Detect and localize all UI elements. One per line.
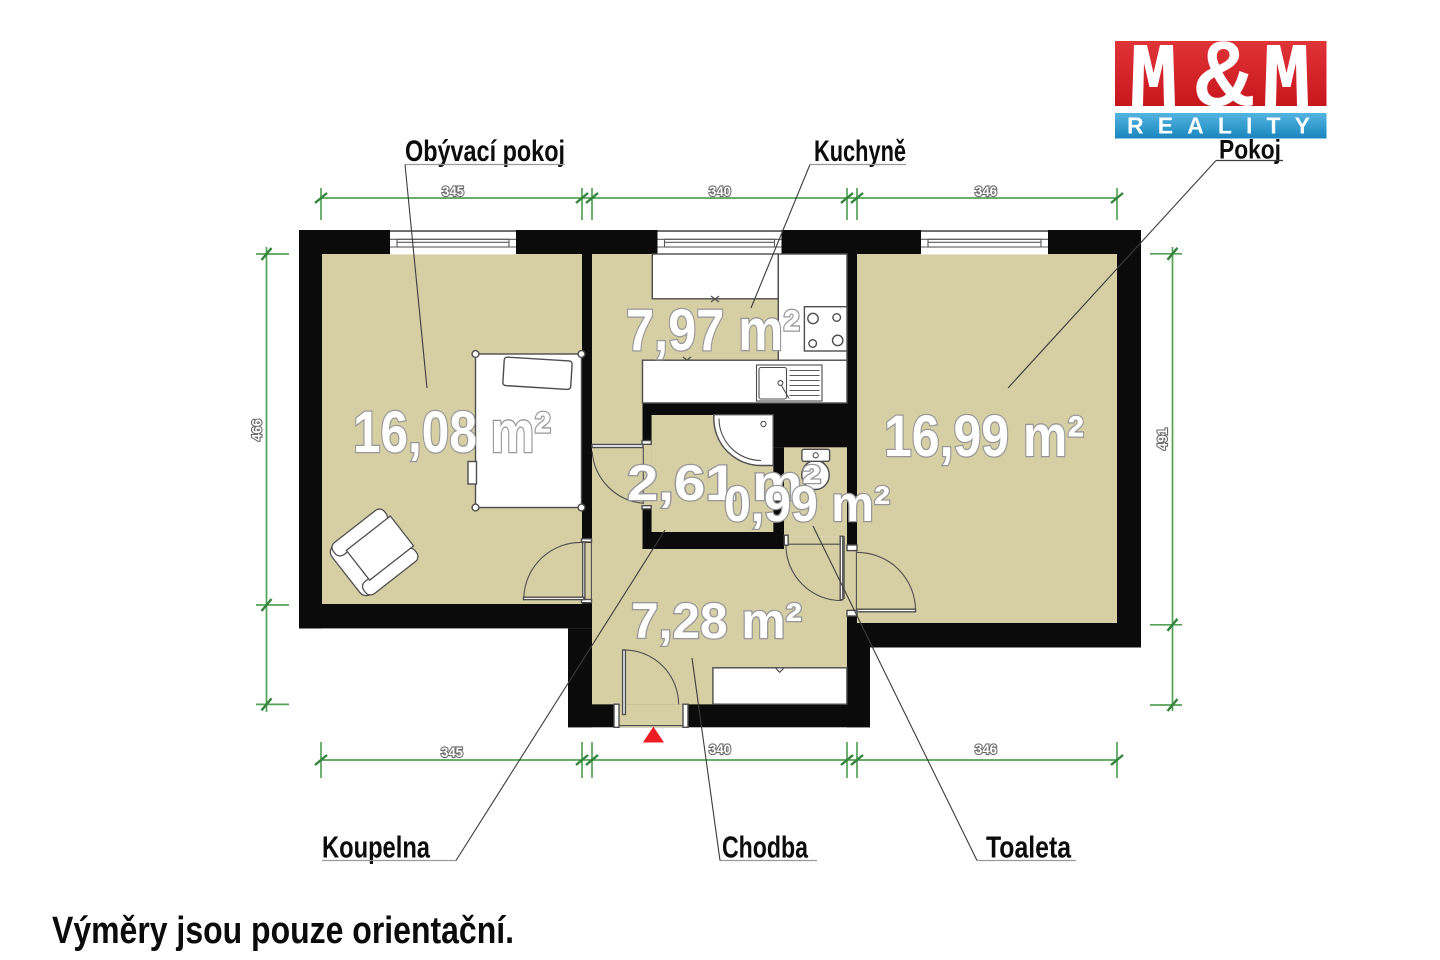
svg-text:491: 491 xyxy=(1154,428,1170,450)
svg-text:345: 345 xyxy=(442,183,464,199)
svg-text:Toaleta: Toaleta xyxy=(986,830,1072,865)
svg-text:7,97 m²: 7,97 m² xyxy=(626,298,800,363)
svg-text:466: 466 xyxy=(249,419,265,441)
svg-text:Koupelna: Koupelna xyxy=(322,830,431,865)
svg-text:346: 346 xyxy=(975,183,997,199)
svg-text:7,28 m²: 7,28 m² xyxy=(631,593,802,649)
svg-text:16,08 m²: 16,08 m² xyxy=(353,400,551,465)
svg-text:Obývací pokoj: Obývací pokoj xyxy=(405,135,565,168)
svg-text:0,99 m²: 0,99 m² xyxy=(724,476,890,532)
svg-text:Kuchyně: Kuchyně xyxy=(814,135,906,168)
svg-text:Výměry jsou pouze orientační.: Výměry jsou pouze orientační. xyxy=(52,910,514,952)
svg-text:346: 346 xyxy=(975,741,997,757)
svg-text:340: 340 xyxy=(709,741,731,757)
svg-text:345: 345 xyxy=(441,744,463,760)
svg-text:340: 340 xyxy=(709,183,731,199)
svg-text:&: & xyxy=(1193,22,1256,126)
svg-text:Chodba: Chodba xyxy=(722,830,809,865)
svg-text:16,99 m²: 16,99 m² xyxy=(884,404,1084,469)
